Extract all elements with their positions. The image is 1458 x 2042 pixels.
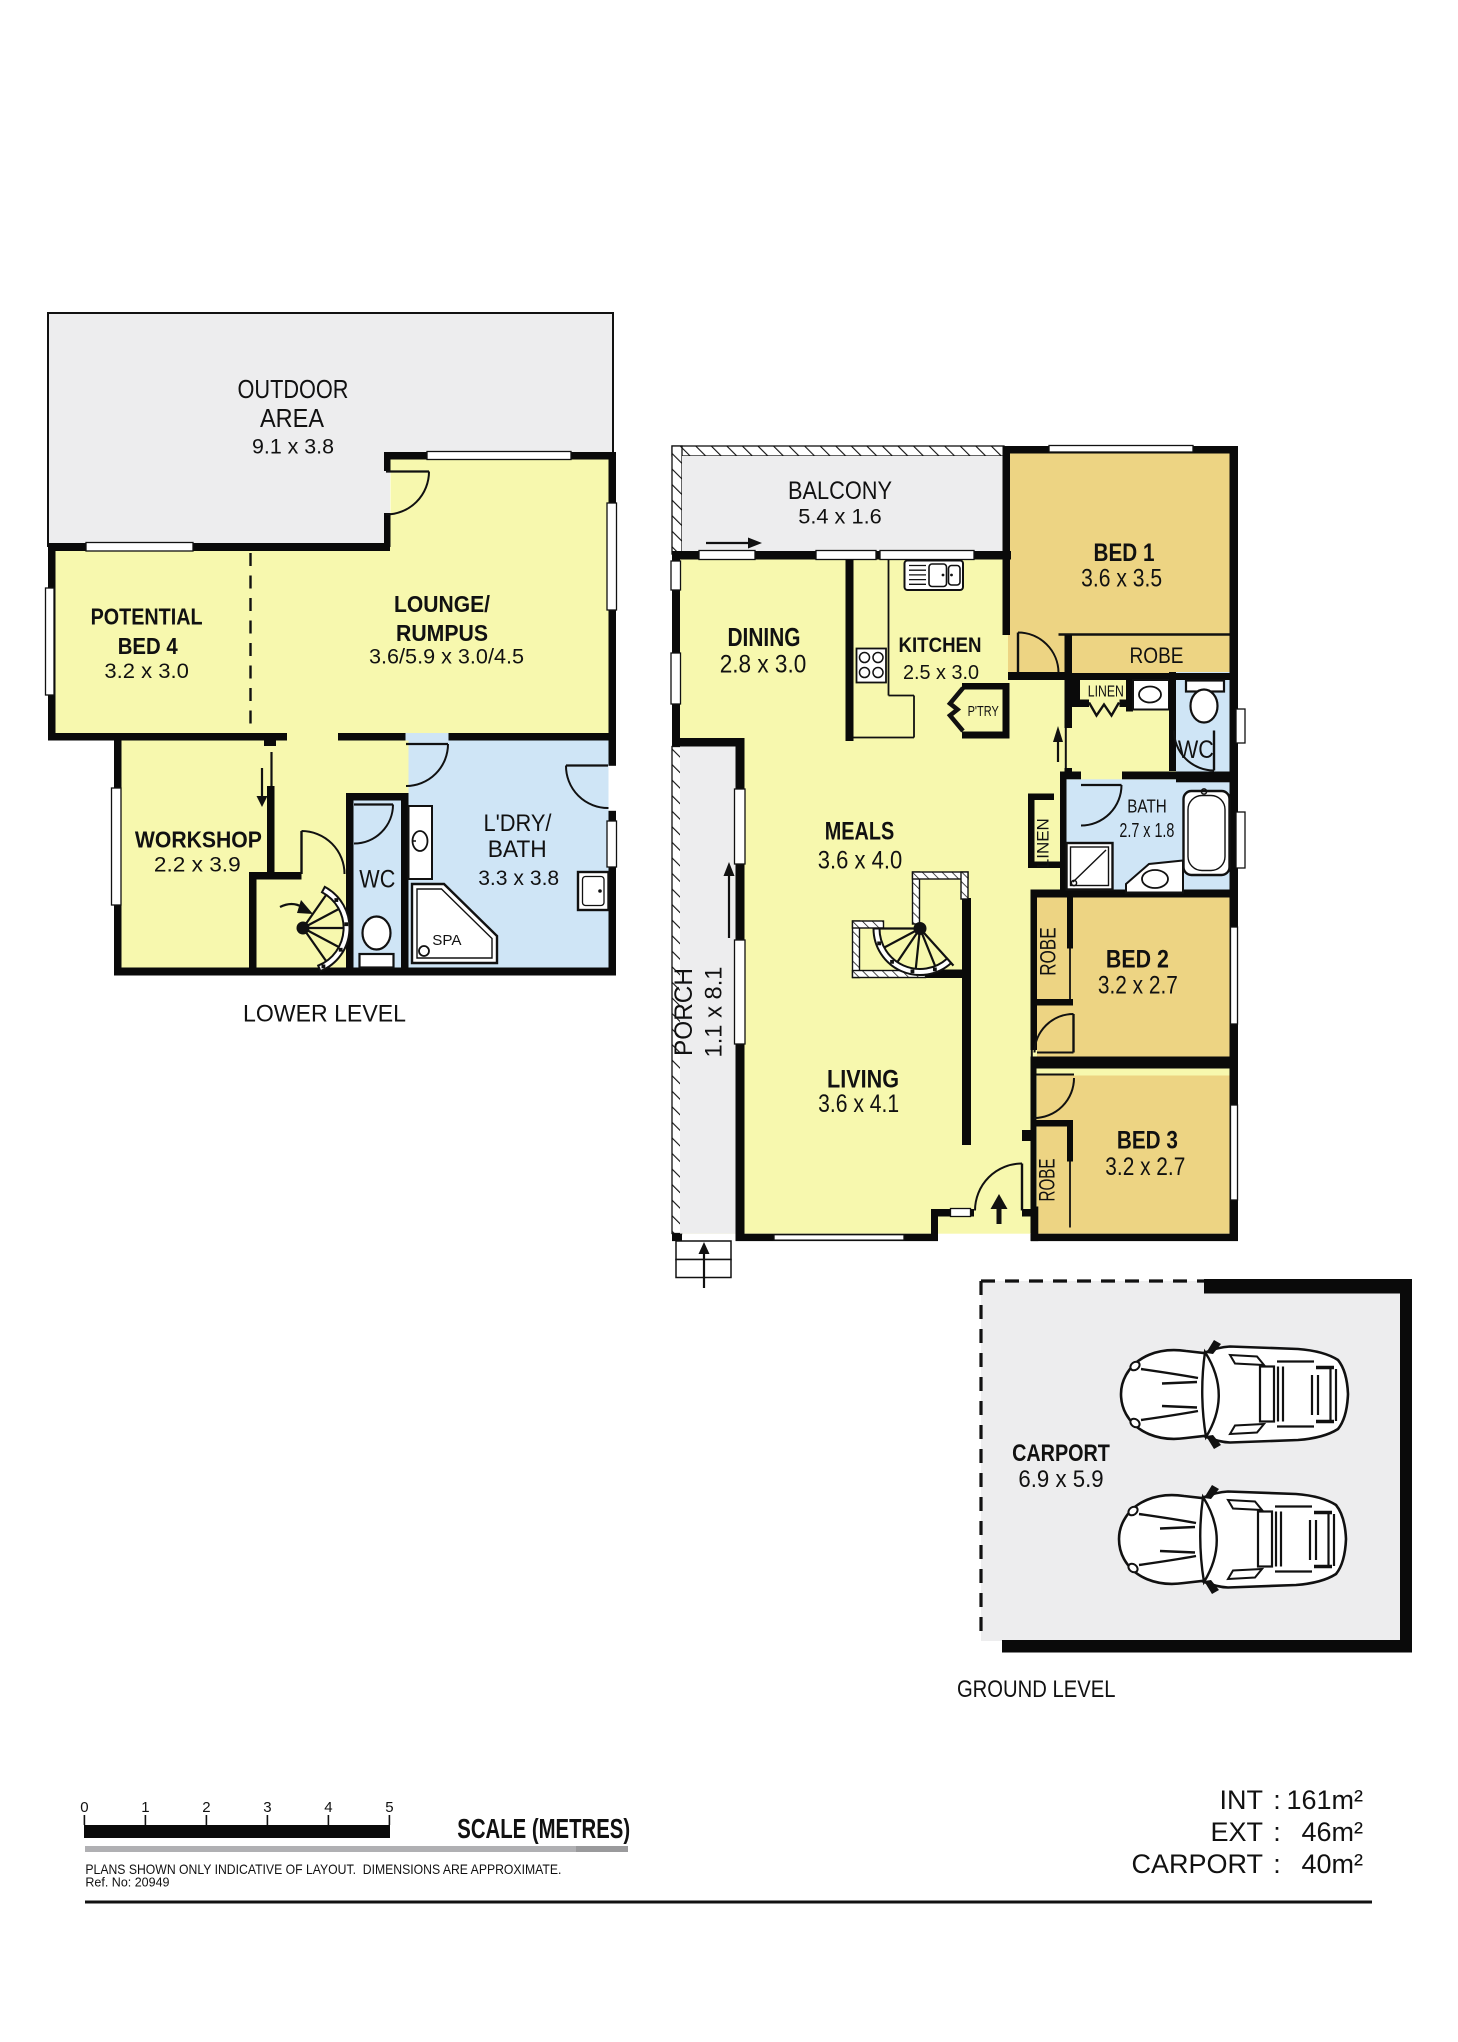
- svg-text:3: 3: [263, 1799, 271, 1816]
- svg-text:2.7 x 1.8: 2.7 x 1.8: [1119, 820, 1174, 842]
- svg-text:GROUND LEVEL: GROUND LEVEL: [957, 1676, 1116, 1703]
- svg-text:BED 4: BED 4: [118, 633, 178, 659]
- svg-text:BATH: BATH: [1127, 795, 1166, 816]
- svg-text:5.4 x 1.6: 5.4 x 1.6: [798, 505, 882, 529]
- svg-text:LOWER LEVEL: LOWER LEVEL: [243, 1001, 406, 1028]
- svg-text:OUTDOOR: OUTDOOR: [238, 374, 349, 404]
- svg-text:ROBE: ROBE: [1035, 927, 1060, 975]
- svg-text:ROBE: ROBE: [1034, 1159, 1059, 1202]
- svg-text:2.5 x 3.0: 2.5 x 3.0: [903, 662, 979, 684]
- svg-text:3.6/5.9 x 3.0/4.5: 3.6/5.9 x 3.0/4.5: [369, 645, 524, 669]
- svg-text:9.1 x 3.8: 9.1 x 3.8: [252, 436, 334, 459]
- svg-text:LINEN: LINEN: [1033, 818, 1052, 868]
- svg-text:6.9 x 5.9: 6.9 x 5.9: [1018, 1466, 1103, 1493]
- svg-text:40m²: 40m²: [1301, 1849, 1363, 1879]
- svg-text:3.6 x 4.1: 3.6 x 4.1: [818, 1090, 899, 1118]
- svg-text:LINEN: LINEN: [1088, 684, 1124, 701]
- svg-text:5: 5: [385, 1799, 393, 1816]
- svg-text:POTENTIAL: POTENTIAL: [91, 604, 203, 630]
- svg-text:RUMPUS: RUMPUS: [396, 620, 488, 646]
- svg-text:3.3 x 3.8: 3.3 x 3.8: [478, 866, 559, 890]
- svg-text:1.1 x 8.1: 1.1 x 8.1: [701, 967, 728, 1058]
- svg-text:2.8 x 3.0: 2.8 x 3.0: [720, 651, 807, 679]
- svg-text:INT: INT: [1220, 1785, 1264, 1815]
- svg-text:2: 2: [202, 1799, 210, 1816]
- svg-text:BATH: BATH: [488, 836, 547, 863]
- svg-text:KITCHEN: KITCHEN: [899, 634, 982, 657]
- svg-text:BED 1: BED 1: [1094, 539, 1155, 567]
- svg-text::: :: [1273, 1849, 1281, 1879]
- svg-text:3.2 x 3.0: 3.2 x 3.0: [104, 659, 189, 683]
- svg-text:L'DRY/: L'DRY/: [484, 810, 552, 837]
- svg-text:3.6 x 3.5: 3.6 x 3.5: [1081, 565, 1162, 593]
- svg-text:CARPORT: CARPORT: [1012, 1440, 1110, 1467]
- svg-text:DINING: DINING: [728, 624, 801, 652]
- svg-text:PORCH: PORCH: [670, 968, 698, 1056]
- svg-text:EXT: EXT: [1210, 1817, 1263, 1847]
- svg-text:WORKSHOP: WORKSHOP: [135, 827, 262, 853]
- svg-text:2.2 x 3.9: 2.2 x 3.9: [154, 853, 241, 877]
- svg-text:SPA: SPA: [432, 932, 461, 949]
- svg-text:BED 3: BED 3: [1117, 1127, 1178, 1155]
- svg-text:3.2 x 2.7: 3.2 x 2.7: [1098, 972, 1178, 1000]
- svg-text:3.6 x 4.0: 3.6 x 4.0: [818, 846, 902, 874]
- svg-text:1: 1: [141, 1799, 149, 1816]
- svg-text:LOUNGE/: LOUNGE/: [394, 591, 490, 617]
- svg-text:WC: WC: [359, 866, 395, 894]
- svg-text:MEALS: MEALS: [825, 818, 895, 846]
- svg-text:0: 0: [80, 1799, 88, 1816]
- svg-text:BED 2: BED 2: [1106, 946, 1169, 974]
- svg-text:4: 4: [324, 1799, 332, 1816]
- svg-text:161m²: 161m²: [1286, 1785, 1363, 1815]
- svg-text:CARPORT: CARPORT: [1131, 1849, 1263, 1879]
- svg-text:WC: WC: [1178, 736, 1214, 764]
- svg-text:3.2 x 2.7: 3.2 x 2.7: [1105, 1153, 1185, 1181]
- svg-text:BALCONY: BALCONY: [788, 477, 892, 505]
- svg-text:ROBE: ROBE: [1130, 643, 1184, 668]
- svg-text:SCALE (METRES): SCALE (METRES): [457, 1813, 630, 1844]
- svg-text:AREA: AREA: [260, 403, 325, 433]
- svg-text::: :: [1273, 1817, 1281, 1847]
- svg-text::: :: [1273, 1785, 1281, 1815]
- svg-text:P'TRY: P'TRY: [968, 703, 999, 720]
- svg-text:Ref. No: 20949: Ref. No: 20949: [85, 1876, 169, 1890]
- svg-text:46m²: 46m²: [1301, 1817, 1363, 1847]
